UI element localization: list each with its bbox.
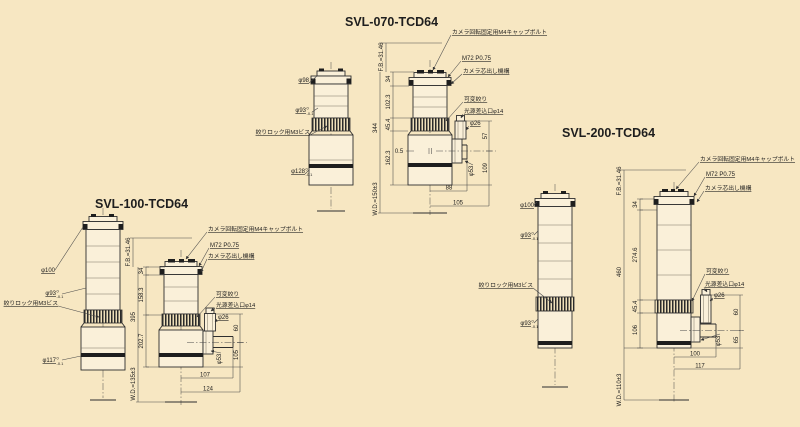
seg-lower-label: 162.3: [386, 150, 392, 166]
lower-barrel: [159, 330, 203, 367]
mount-flange: [409, 78, 451, 86]
cap-bolt-mark: [109, 214, 114, 217]
flange-screw-mark: [119, 224, 124, 229]
tolerance-lower: -0.1: [532, 324, 540, 329]
cap-bolt-mark: [91, 214, 96, 217]
upper-barrel: [657, 205, 691, 301]
mount-flange: [654, 197, 694, 205]
annotation-mount-thread: M72 P0.75: [706, 172, 736, 178]
extension-lines: [624, 199, 657, 348]
dia-barrel-label: φ93: [520, 233, 531, 239]
leader-line: [697, 191, 704, 202]
technical-drawing-page: SVL-070-TCD64 φ98 φ93 0 -0.1 絞りロック用M3ビス: [0, 0, 800, 427]
light-tube: [701, 295, 712, 323]
flange-screw-mark: [571, 201, 576, 206]
camera-mount-cap: [541, 194, 569, 199]
port-flange-dia-label: φ53: [217, 353, 223, 364]
light-tube: [205, 314, 216, 332]
camera-mount-cap: [317, 71, 345, 76]
camera-mount-cap: [89, 217, 117, 222]
width-outer-label: 105: [453, 201, 464, 207]
annotation-light-tube-dia: φ26: [470, 121, 481, 127]
knurl-ring: [84, 310, 122, 323]
overall-label: 460: [617, 266, 623, 277]
lens-retainer-band: [657, 341, 691, 345]
annotation-light-port: 光源差込口φ14: [464, 107, 504, 115]
width-outer-label: 124: [203, 387, 214, 393]
seg-upper-label: 158.3: [139, 287, 145, 303]
working-distance-label: W.D.=150±3: [373, 182, 379, 216]
annotation-centering: カメラ芯出し機構: [705, 184, 752, 192]
annotation-cap-bolt: カメラ回転固定用M4キャップボルト: [208, 225, 303, 233]
camera-mount-cap: [660, 192, 688, 197]
leader-line: [55, 227, 83, 270]
leader-line: [534, 231, 538, 235]
leader-line: [466, 126, 469, 130]
port-above-label: 57: [483, 132, 489, 139]
leader-line: [62, 288, 86, 294]
seg-mount-label: 34: [139, 267, 145, 274]
svl-100-right-view: F.B.=31.46 34 158.3 202.7 395 W.D.=135±3…: [126, 225, 303, 405]
flange-screw-mark: [654, 199, 659, 204]
port-above-label: 60: [234, 324, 240, 331]
leader-line: [62, 356, 81, 360]
flange-screw-mark: [83, 224, 88, 229]
lock-screw-label: 絞りロック用M3ビス: [256, 128, 311, 136]
annotation-light-port: 光源差込口φ14: [216, 301, 256, 309]
working-distance-label: W.D.=135±3: [131, 367, 137, 401]
cap-bolt-mark: [188, 259, 195, 263]
lens-retainer-band: [408, 163, 452, 167]
cap-bolt-mark: [662, 189, 668, 192]
flange-back-label: F.B.=31.46: [617, 166, 623, 196]
dia-barrel-label: φ93: [45, 291, 56, 297]
annotation-light-tube-dia: φ26: [218, 315, 229, 321]
knurl-ring: [162, 314, 200, 326]
leader-line: [534, 319, 538, 323]
svl-070-right-view: F.B.=31.46 34 102.3 45.4 162.3 344 W.D.=…: [373, 28, 547, 216]
lens-dimension-drawing: SVL-070-TCD64 φ98 φ93 0 -0.1 絞りロック用M3ビス: [0, 0, 800, 427]
lower-barrel: [81, 327, 125, 370]
seg-mount-label: 34: [633, 201, 639, 208]
svl-100-title: SVL-100-TCD64: [95, 197, 188, 211]
leader-line: [465, 161, 473, 165]
tolerance-lower: -0.1: [307, 111, 315, 116]
mount-flange: [535, 199, 575, 207]
tolerance-upper: 0: [307, 106, 310, 111]
working-distance-label: W.D.=110±3: [617, 373, 623, 406]
flange-screw-mark: [409, 80, 414, 85]
tolerance-upper: 0: [57, 289, 60, 294]
upper-barrel: [314, 84, 348, 118]
cap-bolt-mark: [417, 70, 424, 74]
tolerance-lower: -0.1: [532, 236, 540, 241]
cap-bolt-mark: [543, 191, 548, 194]
dia-barrel-label: φ93: [295, 108, 306, 114]
port-below-label: 65: [734, 336, 740, 343]
svl-100-group: SVL-100-TCD64 φ100 φ93 0 -0.1 絞りロック用M3ビス: [4, 197, 303, 405]
leader-line: [448, 61, 461, 77]
mount-flange: [83, 222, 123, 230]
port-arm: [213, 337, 233, 348]
leader-line: [694, 177, 705, 196]
svl-070-title: SVL-070-TCD64: [345, 15, 438, 29]
cap-bolt-mark: [168, 259, 175, 263]
annotation-centering: カメラ芯出し機構: [463, 67, 510, 75]
flange-screw-mark: [160, 269, 165, 274]
port-flange-dia-label: φ53: [716, 335, 722, 346]
cap-bolt-mark: [437, 70, 444, 74]
knurl-ring: [655, 300, 693, 313]
width-inner-label: 107: [200, 373, 211, 379]
tolerance-lower: -0.1: [57, 294, 65, 299]
lock-screw-label: 絞りロック用M3ビス: [479, 281, 534, 289]
cap-bolt-mark: [338, 69, 343, 72]
lens-retainer-band: [81, 353, 125, 357]
port-below-label: 109: [483, 162, 489, 173]
port-flange: [691, 317, 700, 342]
width-inner-label: 100: [690, 352, 701, 358]
overall-label: 344: [373, 122, 379, 133]
cap-bolt-mark: [678, 189, 684, 192]
dia-bottom-label: φ128: [291, 169, 306, 175]
segment-chain: [143, 267, 149, 367]
knurl-ring: [536, 297, 574, 311]
seg-upper-label: 274.6: [633, 247, 639, 263]
svl-200-left-view: φ100 φ93 0 -0.1 絞りロック用M3ビス φ93 0 -0.1: [479, 184, 575, 387]
lower-barrel: [408, 135, 452, 185]
annotation-cap-bolt: カメラ回転固定用M4キャップボルト: [700, 155, 795, 163]
flange-back-label: F.B.=31.46: [126, 237, 132, 267]
knurl-ring: [312, 118, 350, 131]
annotation-light-port: 光源差込口φ14: [705, 280, 745, 288]
overall-label: 395: [131, 311, 137, 322]
cap-bolt-mark: [319, 69, 324, 72]
mount-flange: [160, 267, 202, 275]
lock-screw-label: 絞りロック用M3ビス: [4, 299, 59, 307]
port-above-label: 60: [734, 308, 740, 315]
tolerance-lower: -0.1: [57, 361, 65, 366]
svl-070-group: SVL-070-TCD64 φ98 φ93 0 -0.1 絞りロック用M3ビス: [256, 15, 547, 216]
annotation-iris: 可変絞り: [464, 95, 487, 103]
flange-screw-mark: [447, 80, 452, 85]
annotation-iris: 可変絞り: [706, 267, 729, 275]
lens-retainer-band: [538, 341, 572, 345]
leader-line: [186, 232, 207, 259]
cap-bolt-mark: [561, 191, 566, 194]
mount-flange: [311, 76, 351, 84]
annotation-mount-thread: M72 P0.75: [210, 243, 240, 249]
seg-knurl-label: 45.4: [386, 118, 392, 130]
light-tube-opening: [457, 116, 465, 122]
upper-barrel: [538, 207, 572, 298]
upper-barrel: [413, 86, 447, 119]
port-below-label: 105: [234, 349, 240, 360]
seg-upper-label: 102.3: [386, 94, 392, 110]
light-tube-opening: [206, 308, 214, 314]
seg-lower-label: 202.7: [139, 333, 145, 349]
overall-fb-wd-lines: [133, 238, 165, 402]
width-outer-label: 117: [695, 364, 705, 370]
flange-screw-mark: [690, 199, 695, 204]
tolerance-lower: -0.1: [306, 172, 314, 177]
port-flange-dia-label: φ53: [469, 165, 475, 176]
tolerance-upper: 0: [57, 356, 60, 361]
annotation-cap-bolt: カメラ回転固定用M4キャップボルト: [452, 28, 547, 36]
cap-bolt-mark: [671, 189, 675, 192]
svl-070-left-view: φ98 φ93 0 -0.1 絞りロック用M3ビス φ128 0 -0.1: [256, 62, 353, 211]
annotation-iris: 可変絞り: [216, 290, 239, 298]
svl-200-group: SVL-200-TCD64 φ100 φ93 0 -0.1 絞りロック用M3ビス…: [479, 126, 795, 406]
width-inner-label: 88: [446, 186, 453, 192]
svl-100-left-view: φ100 φ93 0 -0.1 絞りロック用M3ビス φ117 0 -0.1: [4, 208, 125, 400]
lens-retainer-band: [309, 164, 353, 168]
seg-knurl-label: 45.4: [633, 300, 639, 312]
dia-bottom-label: φ93: [520, 321, 531, 327]
dia-top-label: φ100: [520, 203, 535, 209]
svl-200-title: SVL-200-TCD64: [562, 126, 655, 140]
dia-bottom-label: φ117: [43, 358, 57, 364]
seg-lower-label: 106: [633, 324, 639, 335]
upper-barrel: [164, 275, 198, 315]
dia-top-label: φ100: [41, 268, 56, 274]
lens-retainer-band: [159, 353, 203, 357]
svl-200-right-view: F.B.=31.46 34 274.6 45.4 106 460 W.D.=11…: [617, 155, 795, 406]
seg-mount-label: 34: [386, 75, 392, 82]
cap-bolt-mark: [179, 259, 184, 263]
leader-line: [433, 35, 451, 70]
flange-back-label: F.B.=31.46: [379, 42, 385, 72]
leader-line: [676, 162, 699, 189]
light-tube: [455, 121, 466, 139]
leader-line: [451, 74, 462, 84]
offset-label: 0.5: [395, 149, 404, 155]
annotation-light-tube-dia: φ26: [714, 293, 725, 299]
flange-screw-mark: [347, 79, 352, 84]
port-arm: [462, 145, 467, 159]
annotation-centering: カメラ芯出し機構: [208, 252, 255, 260]
cap-bolt-mark: [428, 70, 433, 74]
upper-barrel: [86, 230, 120, 311]
annotation-mount-thread: M72 P0.75: [462, 56, 492, 62]
knurl-ring: [411, 118, 449, 131]
dia-top-label: φ98: [298, 78, 309, 84]
